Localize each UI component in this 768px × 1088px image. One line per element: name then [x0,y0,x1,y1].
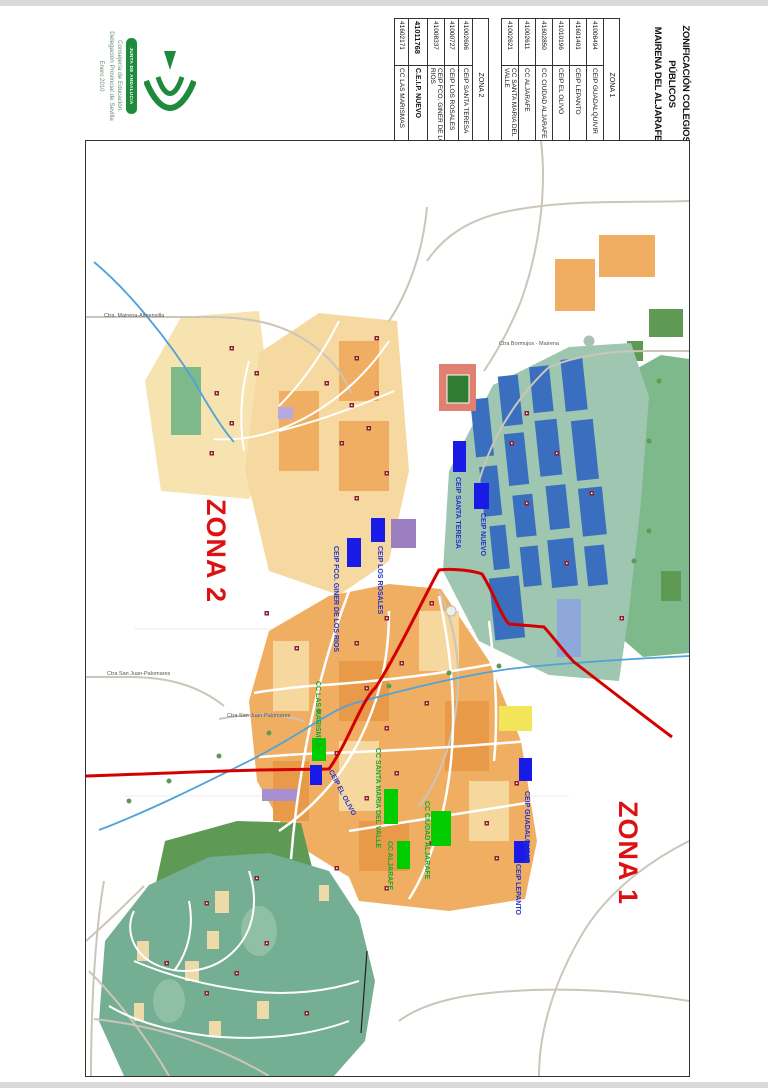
map-label-ceip-guadalquivir: CEIP GUADALQUIVIR [523,791,530,863]
slide-canvas: ZONIFICACIÓN COLEGIOS PÚBLICOS MAIRENA D… [0,0,768,1088]
map-label-ceip-giner: CEIP FCO. GINER DE LOS RIOS [332,546,339,652]
zone-table-header: ZONA 1 [603,19,619,151]
zone-1-label: ZONA 1 [612,801,643,905]
logo-date: Enero 2010 [98,28,104,124]
road-label-san-juan-palomares-2: Ctra San Juan-Palomares [227,713,290,719]
map-label-ceip-lepanto: CEIP LEPANTO [514,864,521,915]
school-code: 41002611 [519,19,535,66]
school-marker-cc-aljarafe [397,841,410,869]
title-line-1: ZONIFICACIÓN COLEGIOS PÚBLICOS [664,14,692,154]
title-line-2: MAIRENA DEL ALJARAFE [651,14,665,154]
school-marker-ceip-el-olivo [310,765,322,785]
map-label-ceip-los-rosales: CEIP LOS ROSALES [376,546,383,614]
table-row: 41011768C.E.I.P. NUEVO [408,19,427,151]
map-label-ceip-santa-teresa: CEIP SANTA TERESA [454,477,461,549]
school-name: CEIP GUADALQUIVIR [587,66,603,151]
road-label-san-juan-palomares-1: Ctra San Juan-Palomares [107,671,170,677]
school-marker-ceip-guadalquivir [519,758,532,781]
table-row: 41002621CC SANTA MARIA DEL VALLE [502,19,518,151]
table-row: 41602171CC LAS MARISMAS [395,19,408,151]
school-name: CC SANTA MARIA DEL VALLE [502,66,518,151]
school-marker-ceip-giner [347,538,361,567]
logo-dept-line1: Consejería de Educación. [115,28,123,124]
school-code: 41601401 [570,19,586,66]
school-marker-cc-ciudad-aljarafe [431,811,451,846]
school-marker-cc-santa-maria [384,789,398,824]
zone-table-header: ZONA 2 [472,19,488,151]
map-label-ceip-el-olivo: CEIP EL OLIVO [327,769,357,817]
road-label-mairena-almensilla: Ctra. Mairena-Almensilla [104,313,164,319]
school-marker-ceip-santa-teresa [453,441,466,472]
zone-table-2: ZONA 241002606CEIP SANTA TERESA41000727C… [394,18,489,152]
junta-andalucia-logo: JUNTA DE ANDALUCIA Consejería de Educaci… [98,28,196,124]
table-row: 41602850CC CIUDAD ALJARAFE [535,19,552,151]
school-code: 41000727 [445,19,458,66]
zone-2-label: ZONA 2 [200,499,231,603]
junta-emblem-icon [144,31,196,121]
school-name: CEIP SANTA TERESA [459,66,472,151]
school-name: CC ALJARAFE [519,66,535,151]
map-label-ceip-nuevo: CEIP NUEVO [479,513,486,556]
school-marker-ceip-los-rosales [371,518,385,542]
rotated-document: ZONIFICACIÓN COLEGIOS PÚBLICOS MAIRENA D… [0,6,768,1082]
school-name: CEIP FCO. GINER DE LOS RIOS [428,66,444,151]
school-name: CEIP LEPANTO [570,66,586,151]
table-row: 41000727CEIP LOS ROSALES [444,19,458,151]
school-code: 41008337 [428,19,444,66]
map-overlay: ZONA 2 ZONA 1 CEIP SANTA TERESA [86,141,689,1076]
map-label-cc-las-marismas: CC LAS MARISMAS [314,681,321,747]
table-row: 41002611CC ALJARAFE [518,19,535,151]
city-map: ZONA 2 ZONA 1 CEIP SANTA TERESA [85,140,690,1077]
table-row: 41002606CEIP SANTA TERESA [458,19,472,151]
logo-dept-line2: Delegación Provincial de Sevilla [107,28,115,124]
table-row: 41008337CEIP FCO. GINER DE LOS RIOS [427,19,444,151]
school-name: C.E.I.P. NUEVO [409,66,427,151]
school-name: CEIP LOS ROSALES [445,66,458,151]
slide-margin-bottom [0,1082,768,1088]
junta-banner: JUNTA DE ANDALUCIA [126,38,137,114]
school-name: CC CIUDAD ALJARAFE [536,66,552,151]
school-code: 41602171 [395,19,408,66]
school-code: 41602850 [536,19,552,66]
school-code: 41002621 [502,19,518,66]
document-title: ZONIFICACIÓN COLEGIOS PÚBLICOS MAIRENA D… [651,14,692,154]
map-label-cc-aljarafe: CC ALJARAFE [386,841,393,890]
school-code: 41011768 [409,19,427,66]
table-row: 41008494CEIP GUADALQUIVIR [586,19,603,151]
slide-margin-top [0,0,768,6]
document-page: ZONIFICACIÓN COLEGIOS PÚBLICOS MAIRENA D… [0,6,768,1082]
table-row: 41601401CEIP LEPANTO [569,19,586,151]
school-name: CEIP EL OLIVO [553,66,569,151]
zone-table-1: ZONA 141008494CEIP GUADALQUIVIR41601401C… [501,18,620,152]
map-label-cc-ciudad-aljarafe: CC CIUDAD ALJARAFE [423,801,430,879]
school-code: 41010196 [553,19,569,66]
table-row: 41010196CEIP EL OLIVO [552,19,569,151]
zone-school-tables: ZONA 141008494CEIP GUADALQUIVIR41601401C… [382,18,620,152]
school-code: 41008494 [587,19,603,66]
map-label-cc-santa-maria: CC SANTA MARIA DEL VALLE [374,748,381,848]
road-label-bormujos-mairena: Ctra Bormujos - Mairena [499,341,559,347]
school-code: 41002606 [459,19,472,66]
school-marker-ceip-nuevo [474,483,489,509]
school-name: CC LAS MARISMAS [395,66,408,151]
